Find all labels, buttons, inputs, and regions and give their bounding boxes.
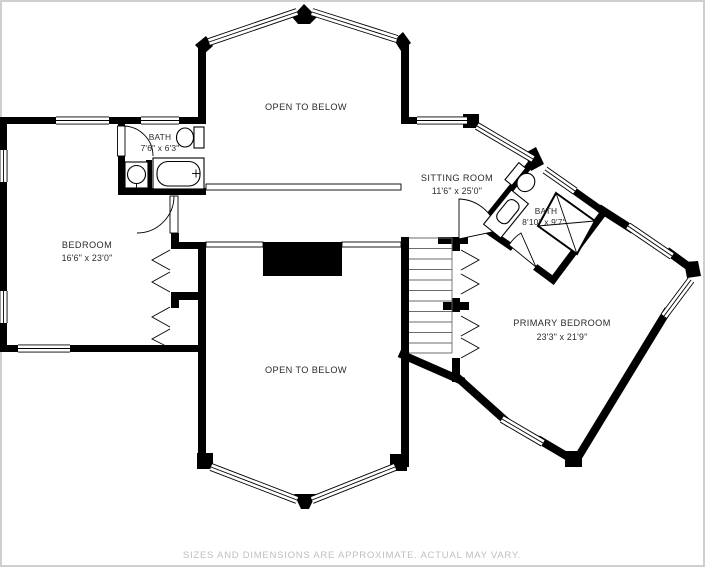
disclaimer-text: SIZES AND DIMENSIONS ARE APPROXIMATE. AC… — [183, 550, 521, 561]
floor-plan-canvas: OPEN TO BELOW BATH 7'6" x 6'3" BEDROOM 1… — [0, 0, 705, 567]
label-primary-bedroom: PRIMARY BEDROOM — [513, 318, 611, 328]
label-bedroom: BEDROOM — [62, 240, 112, 250]
room-labels: OPEN TO BELOW BATH 7'6" x 6'3" BEDROOM 1… — [62, 102, 611, 375]
label-bedroom-dims: 16'6" x 23'0" — [62, 253, 113, 263]
primary-bath-door — [509, 233, 536, 267]
floor-plan-drawing: OPEN TO BELOW BATH 7'6" x 6'3" BEDROOM 1… — [0, 0, 705, 567]
label-bath-primary: BATH — [535, 206, 558, 216]
label-open-to-below-top: OPEN TO BELOW — [265, 102, 347, 112]
toilet-icon — [177, 127, 205, 148]
label-bath-upper: BATH — [149, 132, 172, 142]
label-sitting-room-dims: 11'6" x 25'0" — [432, 186, 482, 196]
label-bath-upper-dims: 7'6" x 6'3" — [141, 143, 180, 153]
bathtub-icon — [153, 158, 204, 189]
staircase — [409, 238, 452, 353]
balcony-railings — [206, 184, 401, 247]
bedroom-closet-doors — [152, 250, 170, 348]
label-open-to-below-bottom: OPEN TO BELOW — [265, 365, 347, 375]
label-bath-primary-dims: 8'10" x 9'7" — [522, 217, 566, 227]
chimney-mass — [263, 242, 342, 276]
bedroom-door — [137, 196, 178, 233]
label-sitting-room: SITTING ROOM — [421, 173, 493, 183]
label-primary-bedroom-dims: 23'3" x 21'9" — [537, 332, 588, 342]
sink-icon — [125, 162, 148, 189]
